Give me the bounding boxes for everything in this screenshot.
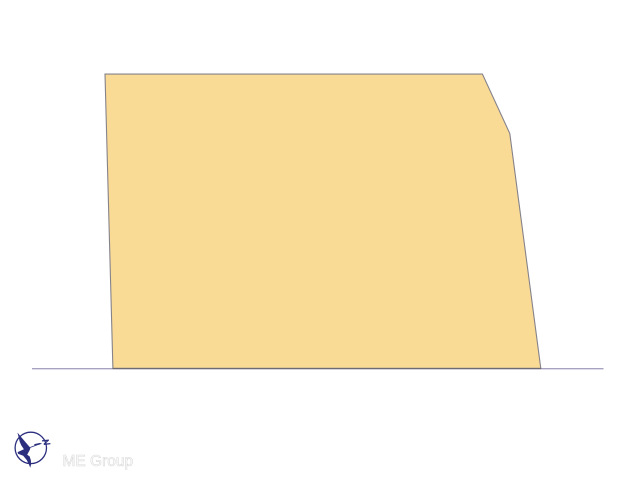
svg-text:ME Group: ME Group xyxy=(63,453,134,470)
